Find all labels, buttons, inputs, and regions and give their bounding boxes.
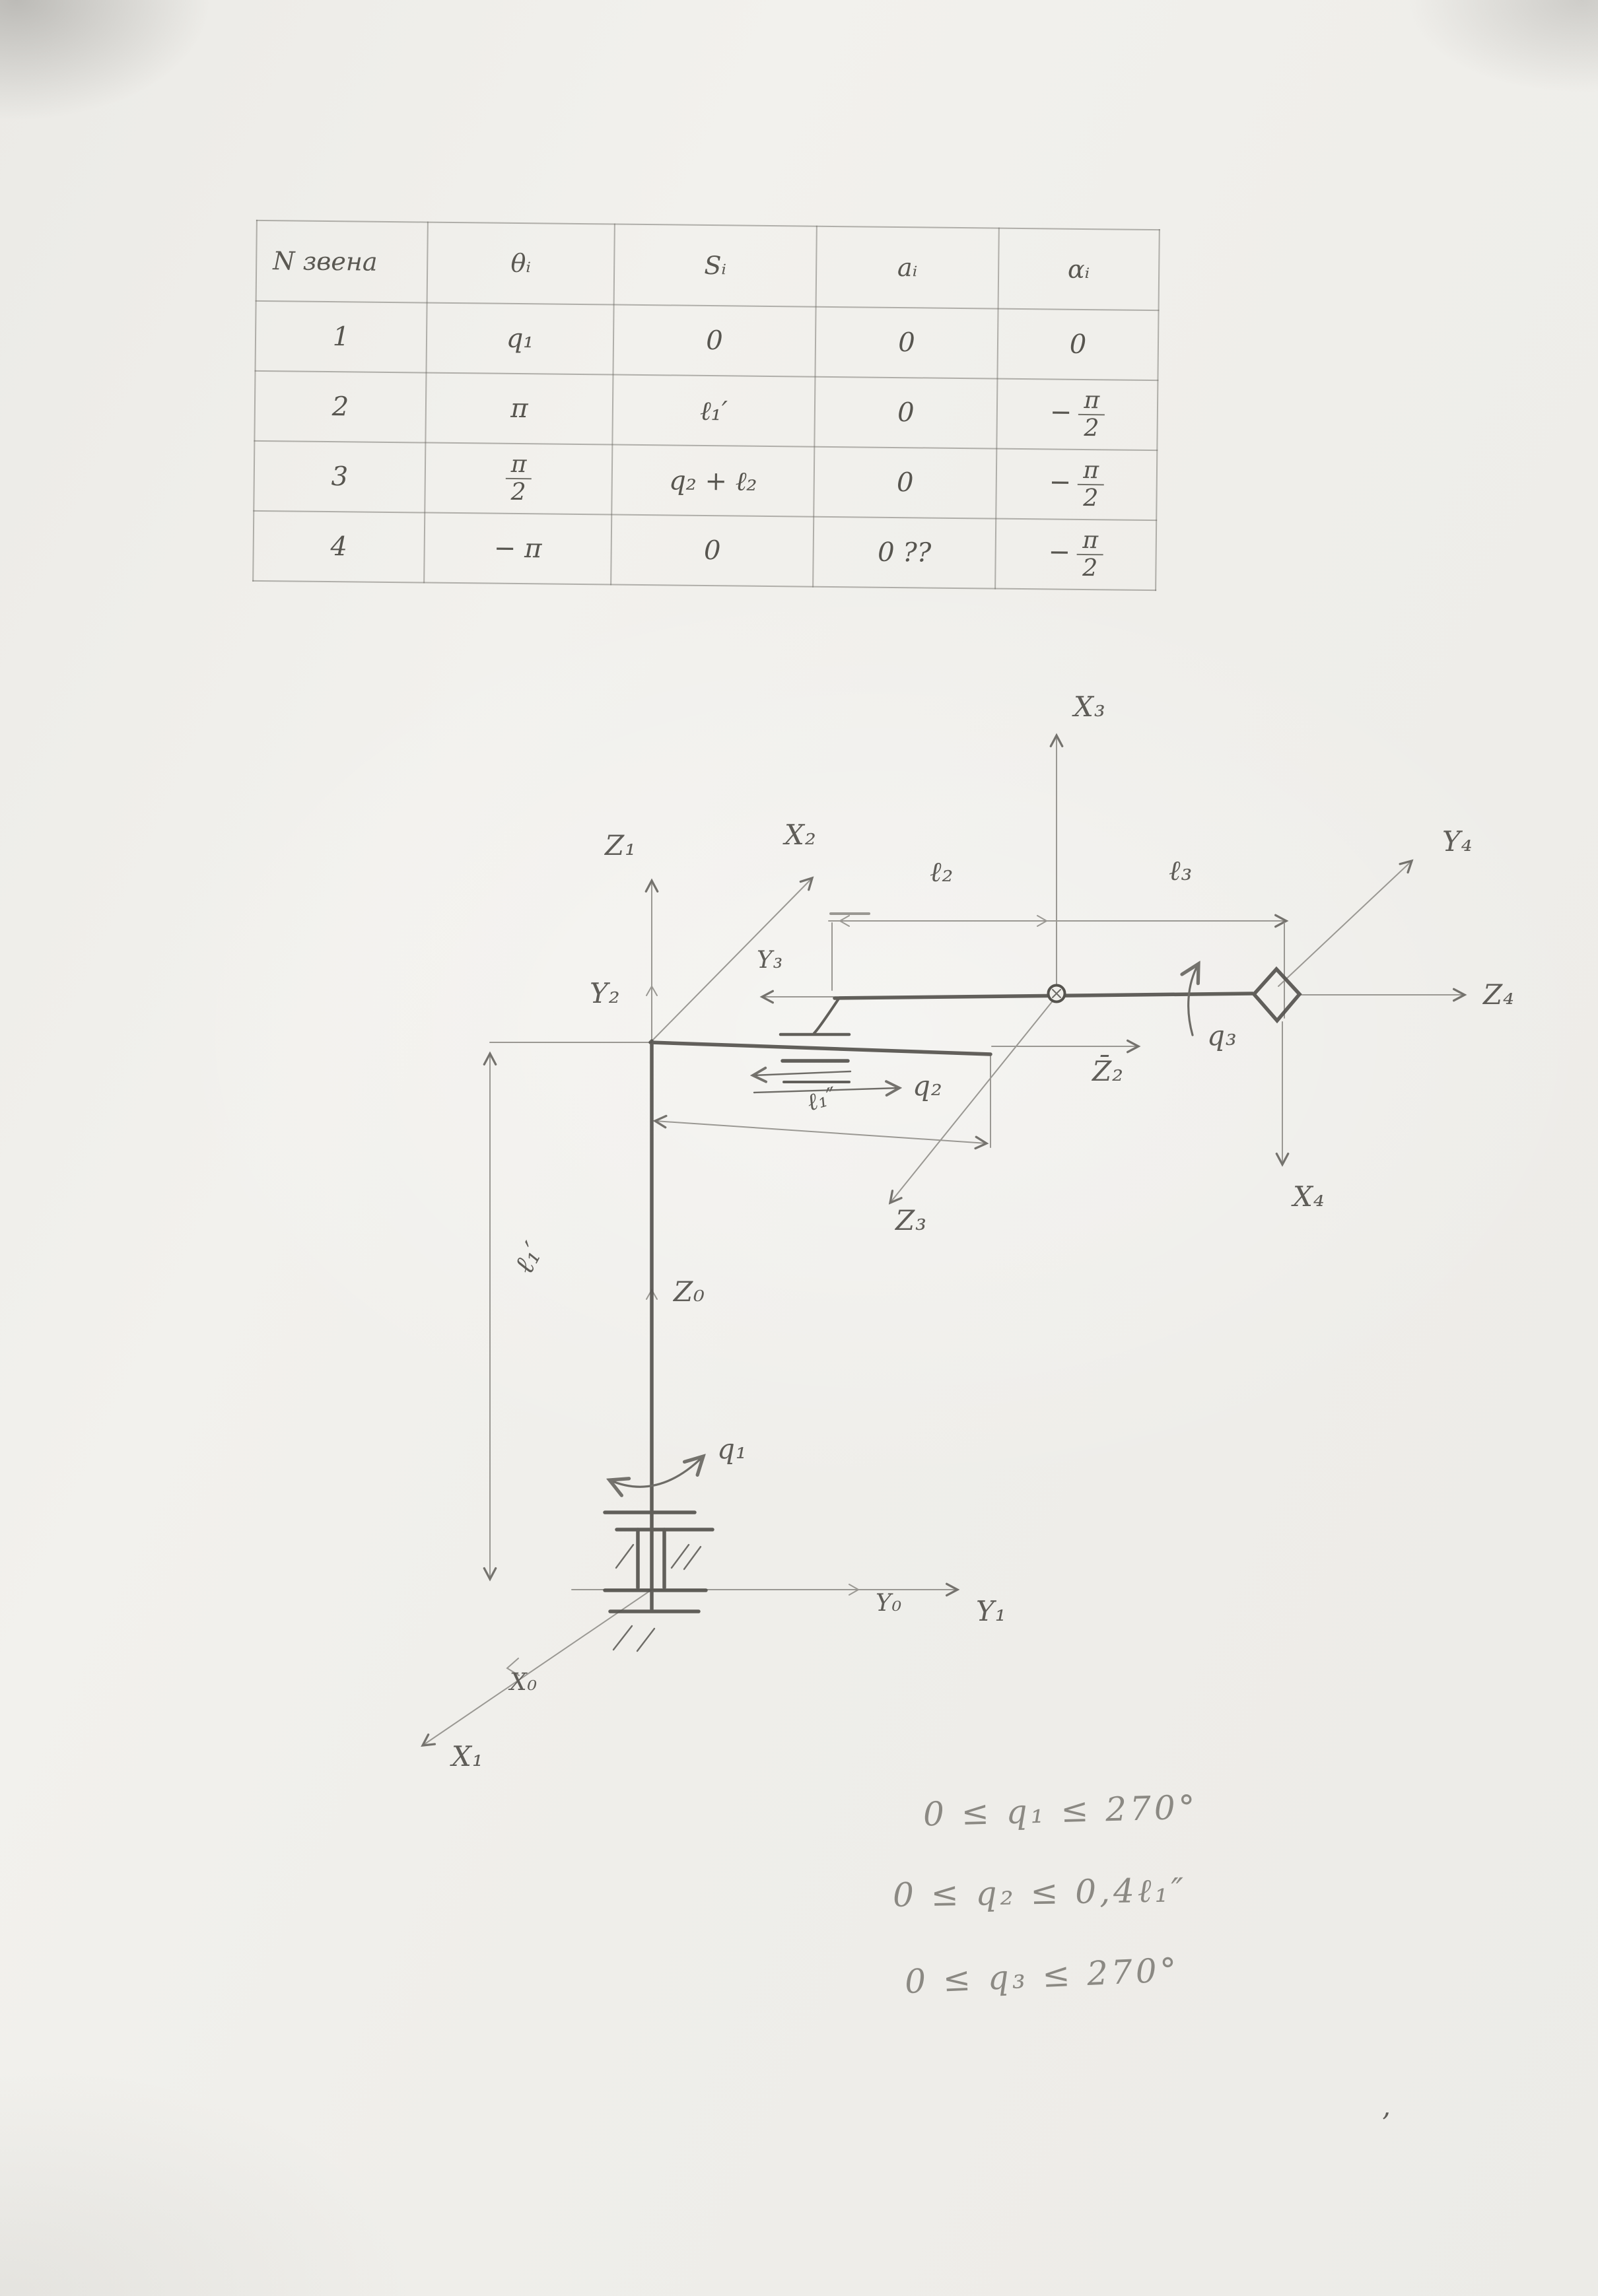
- axis-label-y1: Y₁: [976, 1595, 1007, 1627]
- axis-label-z3: Z₃: [895, 1204, 927, 1236]
- joint-label-q1: q₁: [717, 1433, 747, 1465]
- constraint-q2: 0 ≤ q₂ ≤ 0,4ℓ₁″: [893, 1871, 1187, 1914]
- axis-label-x1: X₁: [452, 1740, 484, 1773]
- joint-label-q2: q₂: [913, 1069, 943, 1102]
- axis-label-x4: X₄: [1293, 1180, 1325, 1213]
- axis-label-z2: Z̄₂: [1092, 1055, 1124, 1087]
- x2-axis: [652, 878, 812, 1041]
- y4-axis: [1278, 861, 1412, 986]
- axis-label-z4: Z₄: [1483, 978, 1515, 1011]
- axis-label-y3: Y₃: [757, 947, 783, 974]
- axis-label-x2: X₂: [784, 819, 817, 851]
- constraint-q1: 0 ≤ q₁ ≤ 270°: [922, 1788, 1198, 1834]
- scanned-page: { "table": { "headers": ["N звена", "θᵢ"…: [0, 0, 1598, 2296]
- axis-label-y4: Y₄: [1442, 825, 1473, 858]
- joint-label-q3: q₃: [1207, 1019, 1237, 1052]
- axis-label-x3: X₃: [1074, 691, 1106, 723]
- q1-rotation-arrow: [609, 1456, 703, 1487]
- kinematic-diagram: [0, 0, 1598, 2296]
- axis-label-z1: Z₁: [605, 829, 637, 861]
- q2-arrow-left: [753, 1071, 851, 1075]
- axis-label-z0: Z₀: [674, 1275, 705, 1308]
- axis-label-y0: Y₀: [876, 1590, 902, 1617]
- l1-inner-dimension-line: [655, 1121, 987, 1143]
- dim-label-l3: ℓ₃: [1169, 854, 1193, 887]
- base-hatching: [613, 1545, 701, 1651]
- link1-horizontal: [650, 1042, 990, 1054]
- axis-label-x0: X₀: [510, 1669, 538, 1696]
- manipulator-links: [605, 969, 1300, 1611]
- stray-pencil-mark: ’: [1381, 2107, 1391, 2140]
- dim-label-l2: ℓ₂: [930, 856, 954, 889]
- end-effector: [1254, 969, 1300, 1021]
- axis-label-y2: Y₂: [590, 977, 621, 1009]
- q3-rotation-arrow: [1189, 964, 1198, 1035]
